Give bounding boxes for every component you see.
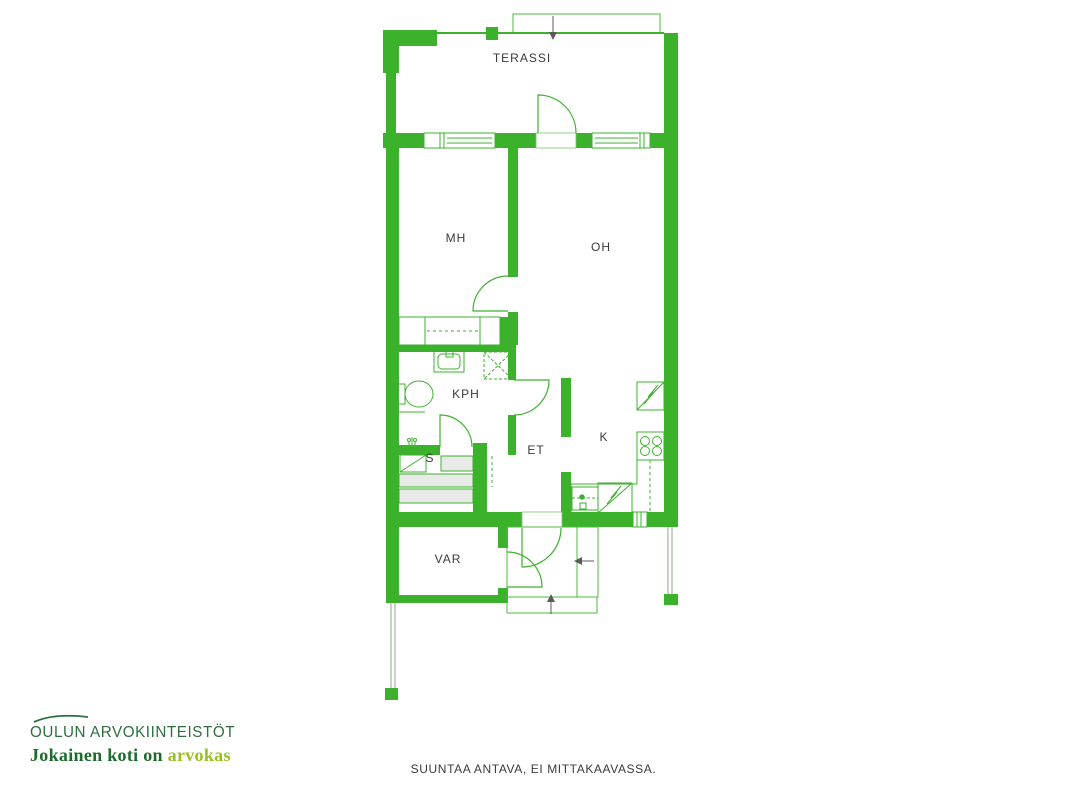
room-label-kph: KPH (452, 387, 480, 401)
front-door (522, 528, 561, 567)
window-terrace-mh (424, 133, 495, 148)
terrace-door (538, 95, 576, 133)
room-label-mh: MH (446, 231, 467, 245)
room-label-s: S (425, 451, 434, 465)
window-kitchen (633, 512, 647, 527)
front-door-opening (522, 512, 562, 527)
window-terrace-oh (592, 133, 650, 148)
company-name: OULUN ARVOKIINTEISTÖT (30, 724, 235, 742)
mh-door (473, 276, 508, 311)
door-openings (522, 133, 576, 527)
arrow-terrace-access (549, 16, 557, 40)
disclaimer-text: SUUNTAA ANTAVA, EI MITTAKAAVASSA. (0, 762, 1067, 776)
kitchen-fixtures (571, 382, 664, 513)
room-label-var: VAR (435, 552, 462, 566)
terrace-railing (397, 27, 664, 40)
room-label-oh: OH (591, 240, 611, 254)
stove (637, 432, 664, 460)
room-label-terassi: TERASSI (493, 51, 551, 65)
room-label-k: K (599, 430, 608, 444)
logo-swoosh-icon (32, 712, 92, 724)
upper-access-structure (513, 14, 660, 33)
floor-plan-page: TERASSI MH OH KPH ET K S VAR OULUN ARVOK… (0, 0, 1067, 800)
terrace-door-opening (536, 133, 576, 148)
floor-plan-svg: TERASSI MH OH KPH ET K S VAR (0, 0, 1067, 800)
kitchen-counter (571, 460, 650, 512)
shower-tap (406, 437, 423, 446)
kitchen-sink (572, 487, 598, 510)
sauna-door (440, 415, 472, 447)
toilet (396, 381, 433, 412)
dishwasher (598, 483, 632, 513)
var-door (507, 552, 542, 587)
railing-post (486, 27, 498, 40)
wardrobe (399, 317, 500, 345)
sauna-stove (400, 455, 426, 472)
kph-door (514, 380, 549, 415)
fence-post-left (385, 688, 398, 700)
washing-machine-reservation (484, 352, 512, 379)
company-logo: OULUN ARVOKIINTEISTÖT Jokainen koti on a… (30, 712, 246, 766)
fence-post-right (664, 594, 678, 605)
fridge (637, 382, 664, 410)
room-label-et: ET (527, 443, 544, 457)
